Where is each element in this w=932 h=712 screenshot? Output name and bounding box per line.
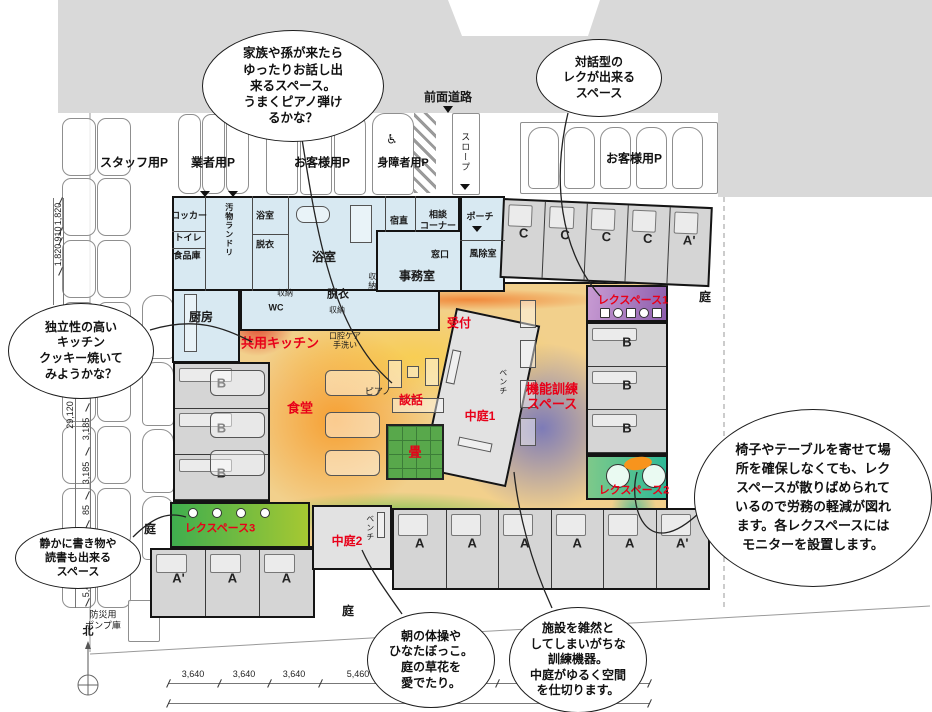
room-c: C xyxy=(626,206,671,284)
dim-bottom-0: 3,640 xyxy=(182,669,205,679)
garden-label: 庭 xyxy=(342,604,354,618)
bubble-morning: 朝の体操や ひなたぼっこ。 庭の草花を 愛でたり。 xyxy=(367,612,495,708)
piano-label: ピアノ xyxy=(365,387,391,398)
windbreak-label: 風除室 xyxy=(469,249,496,260)
room-a-dash: A' xyxy=(667,207,711,285)
room-block-a-right: A A A A A A' xyxy=(392,508,710,590)
oral-care-label: 口腔ケア 手洗い xyxy=(329,332,361,351)
toilet-label: トイレ xyxy=(174,233,201,244)
office-label: 事務室 xyxy=(399,269,435,283)
night-duty-label: 宿直 xyxy=(390,216,408,227)
courtyard1-label: 中庭1 xyxy=(465,409,496,423)
dim-bottom-2: 3,640 xyxy=(283,669,306,679)
bubble-kitchen: 独立性の高い キッチン クッキー焼いて みようかな？ xyxy=(8,303,154,399)
road-arrow xyxy=(443,106,453,113)
room-b: B xyxy=(588,410,666,453)
bath-small-label: 浴室 xyxy=(256,211,274,222)
room-b: B xyxy=(588,324,666,367)
shared-kitchen-label: 共用キッチン xyxy=(241,335,319,350)
kitchen-room xyxy=(172,289,240,363)
undress-small-label: 脱衣 xyxy=(256,240,274,251)
pantry-label: 食品庫 xyxy=(173,251,200,262)
laundry-label: 汚物ランドリ xyxy=(224,203,233,257)
bubble-quiet: 静かに書き物や 読書も出来る スペース xyxy=(15,527,141,589)
reception-label: 受付 xyxy=(447,316,471,330)
room-c: C xyxy=(543,202,588,280)
guest-parking-right-label: お客様用P xyxy=(606,150,662,167)
bubble-family: 家族や孫が来たら ゆったりお話し出 来るスペース。 うまくピアノ弾け るかな？ xyxy=(202,30,384,142)
bubble-equipment: 施設を雑然と してしまいがちな 訓練機器。 中庭がゆるく空間 を仕切ります。 xyxy=(509,607,647,712)
room-block-b-right: B B B xyxy=(586,322,668,455)
entrance-wing xyxy=(460,196,505,292)
rec1-label: レクスペース1 xyxy=(598,295,668,308)
bubble-dialog: 対話型の レクが出来る スペース xyxy=(536,39,662,117)
outside-area-right xyxy=(718,113,932,197)
dim-tl-1: 910 xyxy=(53,226,63,241)
disabled-parking-label: 身障者用P xyxy=(377,154,428,170)
room-block-a-left: A' A A xyxy=(150,548,315,618)
room-c: C xyxy=(584,204,629,282)
room-a: A xyxy=(260,550,313,616)
bench-label: ベンチ xyxy=(498,369,507,396)
garden-label: 庭 xyxy=(699,290,711,304)
room-c: C xyxy=(502,200,547,278)
room-block-c: C C C C A' xyxy=(500,198,713,287)
accessible-aisle-hatch xyxy=(414,113,436,193)
room-a: A xyxy=(394,510,447,588)
dim-bottom-3: 5,460 xyxy=(347,669,370,679)
outside-area-top xyxy=(58,0,932,113)
road-label: 前面道路 xyxy=(424,90,472,104)
storage-label: 収納 xyxy=(367,272,376,290)
tatami-label: 畳 xyxy=(408,444,421,459)
rec3-label: レクスペース3 xyxy=(185,523,255,536)
dim-left-3: 85 xyxy=(81,505,91,515)
kitchen-label: 厨房 xyxy=(189,310,213,324)
porch-label: ポーチ xyxy=(466,212,493,223)
wheelchair-icon: ♿ xyxy=(386,131,398,146)
room-a-dash: A' xyxy=(152,550,206,616)
dim-tl-0: 1,820 xyxy=(53,203,63,226)
slope-arrow xyxy=(460,184,470,190)
room-a: A xyxy=(604,510,657,588)
training-space-label: 機能訓練 スペース xyxy=(526,382,578,413)
wc-label: WC xyxy=(269,303,284,314)
dim-bottom-1: 3,640 xyxy=(233,669,256,679)
staff-parking-label: スタッフ用P xyxy=(100,154,168,171)
consult-corner-label: 相談 コーナー xyxy=(420,209,456,230)
room-b: B xyxy=(588,367,666,410)
bubble-rec: 椅子やテーブルを寄せて場 所を確保しなくても、レク スペースが散りばめられて い… xyxy=(694,409,932,587)
chat-label: 談話 xyxy=(399,393,423,407)
rec2-label: レクスペース2 xyxy=(599,485,669,498)
bath-label: 浴室 xyxy=(312,250,336,264)
garden-label: 庭 xyxy=(144,522,156,536)
slope-label: スロープ xyxy=(460,132,471,172)
dim-left-2: 3,185 xyxy=(81,462,91,485)
room-a: A xyxy=(499,510,552,588)
dim-left-1: 3,185 xyxy=(81,418,91,441)
undress-label: 脱衣 xyxy=(327,289,349,302)
storage-label: 収納 xyxy=(329,305,345,314)
room-a: A xyxy=(552,510,605,588)
dining-label: 食堂 xyxy=(287,400,313,415)
room-a: A xyxy=(447,510,500,588)
window-counter-label: 窓口 xyxy=(431,250,449,261)
locker-label: ロッカー xyxy=(171,211,207,222)
site-plan: ♿ スロープ スタッフ用P 業者用P お客様用P 身障者用P お客様用P 前面道… xyxy=(0,0,932,712)
bench-label: ベンチ xyxy=(365,515,374,542)
dim-tl-2: 1,820 xyxy=(53,244,63,267)
storage-label: 収納 xyxy=(277,288,293,297)
courtyard2-label: 中庭2 xyxy=(332,534,363,548)
room-a: A xyxy=(206,550,260,616)
dim-left-total: 29,120 xyxy=(65,401,75,429)
vendor-parking-label: 業者用P xyxy=(191,154,235,171)
guest-parking-label: お客様用P xyxy=(294,154,350,171)
north-label: 北 xyxy=(83,626,94,639)
